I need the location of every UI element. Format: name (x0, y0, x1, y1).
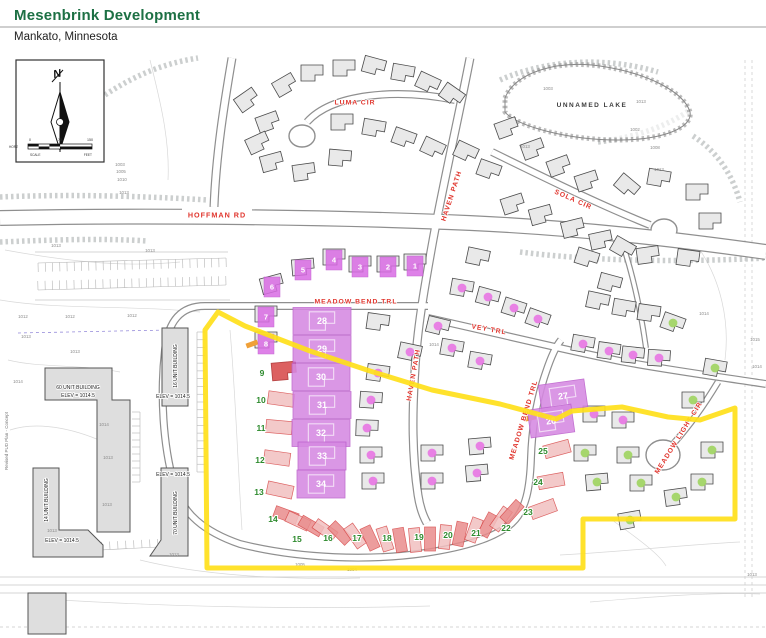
house (494, 117, 520, 140)
elevation-label: 1013 (70, 349, 80, 354)
house (271, 73, 298, 98)
header-divider (0, 26, 766, 28)
scale-bar-segment (49, 144, 60, 147)
green-unit-dot (624, 451, 633, 460)
elevation-label: 1014 (752, 364, 762, 369)
green-unit-dot (711, 364, 720, 373)
magenta-lot: 33 (298, 442, 346, 470)
contour-line (590, 594, 760, 602)
magenta-unit-dot (534, 315, 543, 324)
elevation-label: 1013 (520, 144, 530, 149)
magenta-lot: 5 (295, 260, 311, 280)
townhome-strip (267, 391, 295, 407)
magenta-unit-dot (476, 442, 485, 451)
lot-number: 33 (317, 451, 327, 461)
green-unit-dot (637, 479, 646, 488)
elevation-label: 1013 (21, 334, 31, 339)
magenta-unit-dot (629, 351, 638, 360)
building-label: ELEV = 1014.5 (156, 394, 190, 400)
magenta-lot-blocks: 282930313233342726 (292, 308, 588, 499)
house (259, 151, 284, 172)
house (546, 155, 572, 178)
page-title: Mesenbrink Development (14, 7, 200, 24)
house (361, 55, 386, 76)
house (331, 114, 353, 130)
magenta-unit-dot (428, 477, 437, 486)
green-unit-dot (669, 319, 678, 328)
elevation-label: 1013 (145, 248, 155, 253)
magenta-unit-dot (369, 477, 378, 486)
elevation-label: 1014 (99, 422, 109, 427)
magenta-unit-dot (448, 344, 457, 353)
house (586, 291, 611, 311)
elevation-label: 1014 (429, 342, 439, 347)
house (301, 65, 323, 81)
elevation-label: 1013 (103, 455, 113, 460)
scale-tick-0: 0 (29, 138, 31, 142)
page-subtitle: Mankato, Minnesota (14, 31, 118, 43)
house (420, 136, 447, 160)
house (466, 247, 491, 267)
building-label: 70 UNIT BUILDING (173, 491, 179, 535)
house (612, 298, 636, 318)
site-plan-map: 2829303132333427261234567891011121314151… (0, 0, 766, 638)
magenta-unit-dot (619, 416, 628, 425)
elevation-label: 1014 (13, 379, 23, 384)
scale-tick-150: 150 (87, 138, 93, 142)
magenta-unit-dot (363, 424, 372, 433)
contour-line (150, 60, 168, 180)
townhome-strip (263, 450, 291, 466)
house (574, 247, 600, 269)
house (520, 138, 546, 161)
scale-tick-75: 75 (58, 138, 62, 142)
lot-number: 20 (443, 530, 453, 540)
compass-hub (57, 119, 64, 126)
culdesac-surface (290, 126, 313, 145)
elevation-label: 1013 (747, 572, 757, 577)
elevation-label: 1013 (636, 99, 646, 104)
house (613, 173, 640, 199)
tree-row (0, 196, 208, 200)
lot-number: 21 (471, 528, 481, 538)
magenta-unit-dot (484, 293, 493, 302)
lot-number: 2 (386, 263, 390, 272)
magenta-unit-dot (434, 322, 443, 331)
contour-line (0, 300, 200, 312)
lot-number: 16 (323, 533, 333, 543)
contour-line (700, 250, 726, 360)
apartment-buildings (28, 328, 188, 634)
elevation-label: 1013 (102, 502, 112, 507)
parking-stalls (38, 258, 226, 272)
house (636, 246, 660, 265)
elevation-label: 1002 (630, 127, 640, 132)
magenta-lot: 26 (527, 404, 574, 438)
building-footprint (28, 593, 66, 634)
lot-number: 1 (413, 262, 417, 271)
house (245, 131, 272, 155)
townhome-strip (265, 419, 292, 434)
magenta-unit-dot (579, 340, 588, 349)
house (255, 111, 281, 134)
townhome-strip (425, 527, 436, 551)
elevation-label: 1014 (699, 311, 709, 316)
lot-number: 6 (270, 283, 274, 292)
building-label: ELEV = 1014.5 (61, 393, 95, 399)
north-arrow-box: N075150HORZSCALEFEET (9, 60, 104, 162)
house (333, 60, 355, 76)
drawing-margin-note: Revised PUD Plan - Concept (4, 411, 9, 470)
lot-number: 22 (501, 523, 511, 533)
elevation-label: 1013 (47, 528, 57, 533)
street-label: MEADOW BEND TRL (315, 299, 398, 306)
lot-number: 15 (292, 534, 302, 544)
magenta-lot: 28 (293, 308, 351, 335)
house (597, 272, 622, 293)
magenta-lot: 4 (326, 250, 342, 270)
elevation-label: 1013 (51, 243, 61, 248)
house (699, 213, 721, 229)
building-label: ELEV = 1014.5 (156, 472, 190, 478)
house (686, 184, 708, 200)
parking-stalls (132, 412, 140, 482)
lot-number: 19 (414, 532, 424, 542)
lot-number: 14 (268, 514, 278, 524)
house (476, 159, 502, 182)
house (676, 249, 700, 268)
magenta-lot: 31 (293, 392, 351, 419)
lot-number: 3 (358, 263, 362, 272)
building-label: 14 UNIT BUILDING (44, 478, 50, 522)
street-label: LUMA CIR (335, 100, 376, 107)
elevation-label: 1008 (650, 145, 660, 150)
green-unit-dot (593, 478, 602, 487)
house (500, 193, 526, 215)
parking-stalls (38, 276, 226, 290)
elevation-label: 1013 (654, 167, 664, 172)
lot-number: 10 (256, 395, 266, 405)
townhome-strip (266, 481, 294, 499)
elevation-label: 1015 (750, 337, 760, 342)
magenta-lot: 34 (297, 470, 345, 498)
house (233, 87, 260, 113)
magenta-unit-dot (476, 357, 485, 366)
magenta-lot: 2 (380, 257, 396, 277)
elevation-label: 1012 (127, 313, 137, 318)
lot-number: 9 (260, 368, 265, 378)
scale-label: SCALE (30, 153, 40, 157)
townhome-strip (392, 527, 407, 553)
house (391, 63, 415, 83)
magenta-lot: 7 (258, 307, 274, 327)
house (391, 127, 417, 150)
scale-horz-label: HORZ (9, 145, 18, 149)
page: { "header": { "title": "Mesenbrink Devel… (0, 0, 766, 638)
magenta-lot: 3 (352, 257, 368, 277)
house (328, 149, 351, 167)
survey-line (18, 330, 168, 333)
elevation-label: 1003 (115, 162, 125, 167)
green-unit-dot (698, 478, 707, 487)
magenta-unit-dot (458, 284, 467, 293)
scale-bar-segment (28, 144, 39, 147)
street-label: HOFFMAN RD (188, 211, 246, 220)
magenta-unit-dot (510, 304, 519, 313)
scale-feet-label: FEET (84, 153, 92, 157)
elevation-label: 1010 (117, 177, 127, 182)
magenta-lot: 6 (264, 277, 280, 297)
scale-bar-segment (60, 147, 92, 150)
lake-label: UNNAMED LAKE (557, 102, 628, 109)
magenta-unit-dot (367, 451, 376, 460)
house (366, 313, 390, 332)
lot-number: 5 (301, 266, 305, 275)
culdesac-surface (652, 220, 675, 239)
elevation-label: 1012 (18, 314, 28, 319)
magenta-unit-dot (367, 396, 376, 405)
green-unit-dot (672, 493, 681, 502)
lot-number: 31 (317, 400, 327, 410)
lot-number: 34 (316, 479, 326, 489)
magenta-unit-dot (655, 354, 664, 363)
lot-number: 30 (316, 372, 326, 382)
contour-line (230, 330, 242, 530)
building-footprint (150, 468, 188, 556)
elevation-label: 1003 (543, 86, 553, 91)
lot-number: 12 (255, 455, 265, 465)
lot-number: 27 (557, 390, 568, 401)
house (637, 304, 661, 323)
magenta-lot: 30 (292, 364, 350, 391)
lot-number: 13 (254, 487, 264, 497)
townhome-strip (529, 498, 558, 519)
building-label: 16 UNIT BUILDING (173, 344, 179, 388)
lot-number: 32 (316, 428, 326, 438)
lot-number: 11 (257, 423, 266, 433)
lot-number: 28 (317, 316, 327, 326)
elevation-label: 1005 (116, 169, 126, 174)
green-unit-dot (708, 446, 717, 455)
magenta-lot: 1 (407, 256, 423, 276)
building-label: ELEV = 1014.5 (45, 538, 79, 544)
lot-number: 17 (352, 533, 362, 543)
street-label: MEADOW LIGHT CIR (654, 401, 704, 476)
contour-line (60, 600, 430, 608)
lot-number: 7 (264, 313, 268, 322)
green-unit-dot (581, 449, 590, 458)
lot-number: 8 (264, 340, 268, 349)
house (292, 163, 316, 182)
magenta-unit-dot (428, 449, 437, 458)
elevation-label: 1012 (65, 314, 75, 319)
house (362, 118, 386, 138)
tree-row (105, 58, 198, 95)
lot-number: 25 (538, 446, 548, 456)
lot-number: 23 (523, 507, 533, 517)
house (574, 170, 600, 192)
elevation-label: 1013 (119, 190, 129, 195)
lot-number: 24 (533, 477, 543, 487)
magenta-unit-dot (473, 469, 482, 478)
magenta-unit-dot (605, 347, 614, 356)
elevation-label: 1013 (169, 552, 179, 557)
tree-row (0, 239, 148, 242)
lot-number: 18 (382, 533, 392, 543)
building-label: 60 UNIT BUILDING (56, 385, 100, 391)
scale-bar-segment (39, 147, 50, 150)
